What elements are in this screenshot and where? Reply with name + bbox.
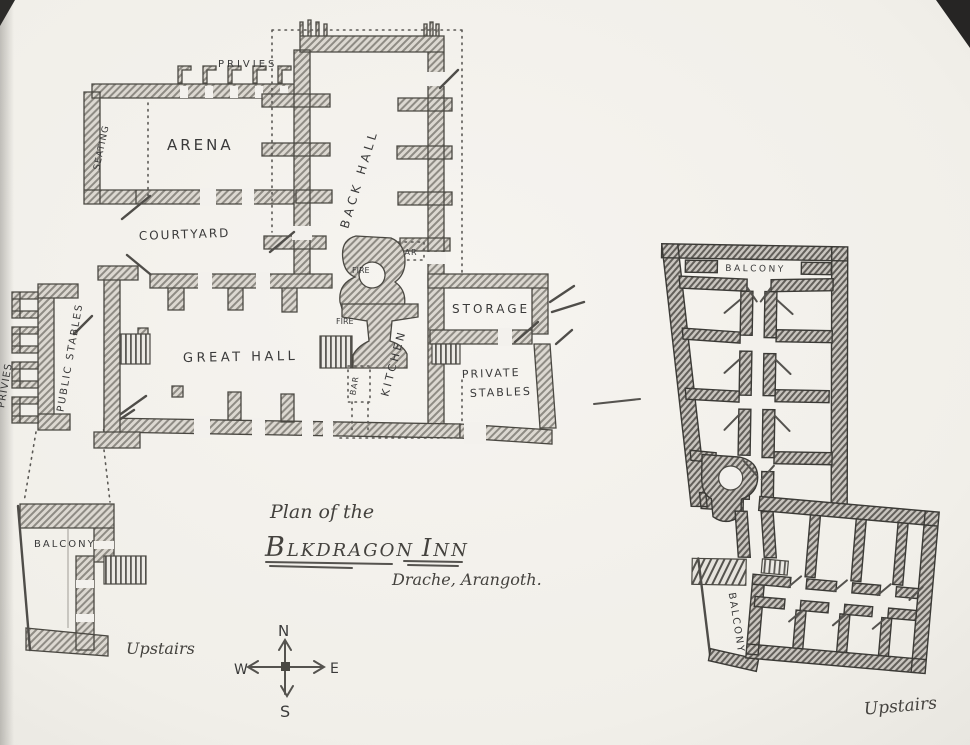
inset-upstairs-caption: Upstairs bbox=[126, 639, 195, 658]
storage-staircase bbox=[432, 344, 460, 364]
inset-staircase bbox=[104, 556, 146, 584]
private-stables-label-1: PRIVATE bbox=[462, 366, 521, 381]
kitchen-staircase bbox=[320, 336, 352, 368]
balcony-rail-right bbox=[801, 262, 831, 275]
inn-name-rest: LKDRAGON bbox=[286, 540, 414, 561]
upstairs-balcony-north-label: BALCONY bbox=[725, 264, 786, 275]
private-stables-label-2: STABLES bbox=[470, 385, 532, 400]
compass-north-label: N bbox=[278, 622, 289, 640]
storage-label: STORAGE bbox=[452, 302, 530, 316]
compass-south-label: S bbox=[280, 702, 290, 721]
fire-north-label: FIRE bbox=[352, 266, 370, 275]
wing-staircase bbox=[761, 559, 788, 575]
title-prefix: Plan of the bbox=[269, 501, 374, 523]
stables-staircase bbox=[120, 334, 150, 364]
balcony-rail-left bbox=[685, 260, 717, 273]
inn-name-initial-i: I bbox=[421, 534, 433, 562]
fire-south-label: FIRE bbox=[336, 317, 354, 326]
inn-name-inn-rest: NN bbox=[432, 540, 469, 561]
inn-name-initial-b: B bbox=[264, 532, 287, 563]
privies-north-label: PRIVIES bbox=[218, 59, 277, 70]
compass-west-label: W bbox=[234, 662, 248, 678]
compass-center bbox=[281, 662, 290, 671]
great-hall-label: GREAT HALL bbox=[183, 349, 299, 366]
compass-east-label: E bbox=[330, 661, 339, 677]
title-location: Drache, Arangoth. bbox=[391, 570, 542, 589]
scanned-floor-plan-page: ARENA SEATING PRIVIES BACK HALL BAR COUR… bbox=[0, 0, 970, 745]
spiral-stair-well bbox=[718, 466, 742, 490]
arena-label: ARENA bbox=[167, 136, 234, 154]
blkdragon-inn-plan: ARENA SEATING PRIVIES BACK HALL BAR COUR… bbox=[0, 0, 970, 745]
inset-balcony-label: BALCONY bbox=[34, 539, 96, 550]
